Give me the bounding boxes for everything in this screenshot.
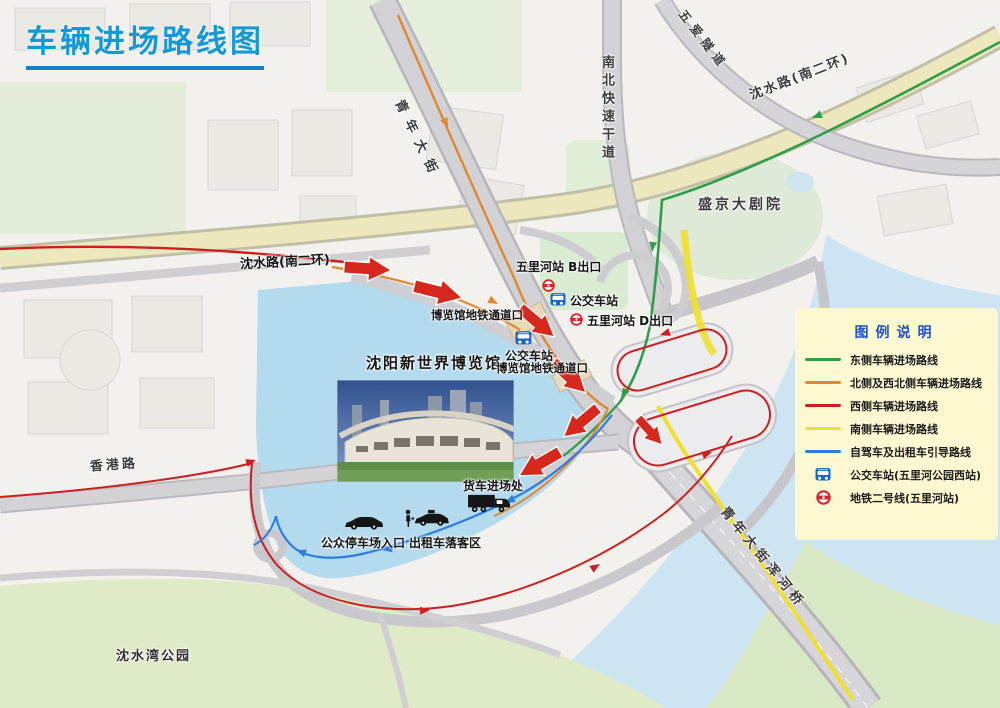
- guide-route-swatch: [805, 450, 841, 453]
- place-label-expo: 沈阳新世界博览馆: [366, 356, 502, 371]
- place-label-park: 沈水湾公园: [116, 650, 191, 663]
- station-label-wulihe-exit-d: 五里河站 D出口: [587, 315, 673, 327]
- facility-label-truck-entrance: 货车进场处: [463, 480, 523, 492]
- legend-label-guide: 自驾车及出租车引导路线: [850, 444, 971, 460]
- facility-label-parking-entrance: 公众停车场入口: [321, 537, 405, 549]
- legend-row-north-route: 北侧及西北侧车辆进场路线: [795, 371, 998, 394]
- label-metro-passage-north: 博览馆地铁通道口: [431, 310, 523, 322]
- taxi-icon: [404, 509, 450, 528]
- metro-icon-exit-d: [570, 313, 583, 326]
- metro-icon-legend: [816, 490, 831, 505]
- legend-row-guide-route: 自驾车及出租车引导路线: [795, 440, 998, 463]
- station-label-bus-stop-north: 公交车站: [570, 295, 618, 307]
- page-title: 车辆进场路线图: [26, 16, 264, 70]
- legend-title: 图例说明: [795, 322, 998, 342]
- truck-icon: [468, 493, 512, 514]
- legend-row-bus-station: 公交车站(五里河公园西站): [795, 463, 998, 486]
- bus-icon-legend: [815, 467, 831, 482]
- facility-label-taxi-dropoff: 出租车落客区: [409, 537, 481, 549]
- legend-label-east: 东侧车辆进场路线: [850, 352, 938, 368]
- legend-label-bus: 公交车站(五里河公园西站): [850, 467, 981, 483]
- car-icon: [344, 514, 384, 531]
- station-label-wulihe-exit-b: 五里河站 B出口: [516, 261, 601, 273]
- west-route-swatch: [805, 404, 841, 407]
- legend-label-south: 南侧车辆进场路线: [850, 421, 938, 437]
- legend-row-west-route: 西侧车辆进场路线: [795, 394, 998, 417]
- south-route-swatch: [805, 427, 841, 430]
- metro-icon-exit-b: [542, 279, 555, 292]
- legend-row-east-route: 东侧车辆进场路线: [795, 348, 998, 371]
- legend-label-north: 北侧及西北侧车辆进场路线: [850, 375, 982, 391]
- place-label-theatre: 盛京大剧院: [698, 198, 783, 212]
- route-map-page: 车辆进场路线图 青年大街 南北快速干道 五爱隧道 沈水路(南二环) 沈水路(南二…: [0, 0, 1000, 708]
- legend-label-metro: 地铁二号线(五里河站): [850, 490, 959, 506]
- road-label-hongkong-road: 香港路: [90, 457, 139, 473]
- legend-label-west: 西侧车辆进场路线: [850, 398, 938, 414]
- expo-photo: [337, 380, 516, 482]
- legend-row-metro-line: 地铁二号线(五里河站): [795, 486, 998, 509]
- bus-icon-north: [550, 292, 566, 307]
- bus-icon-west: [515, 330, 532, 346]
- label-metro-passage-west: 博览馆地铁通道口: [496, 363, 588, 375]
- north-route-swatch: [805, 381, 841, 384]
- road-label-nanbei-expressway: 南北快速干道: [600, 55, 613, 163]
- east-route-swatch: [805, 358, 841, 361]
- legend-panel: 图例说明 东侧车辆进场路线 北侧及西北侧车辆进场路线 西侧车辆进场路线 南侧车辆…: [795, 308, 998, 540]
- legend-row-south-route: 南侧车辆进场路线: [795, 417, 998, 440]
